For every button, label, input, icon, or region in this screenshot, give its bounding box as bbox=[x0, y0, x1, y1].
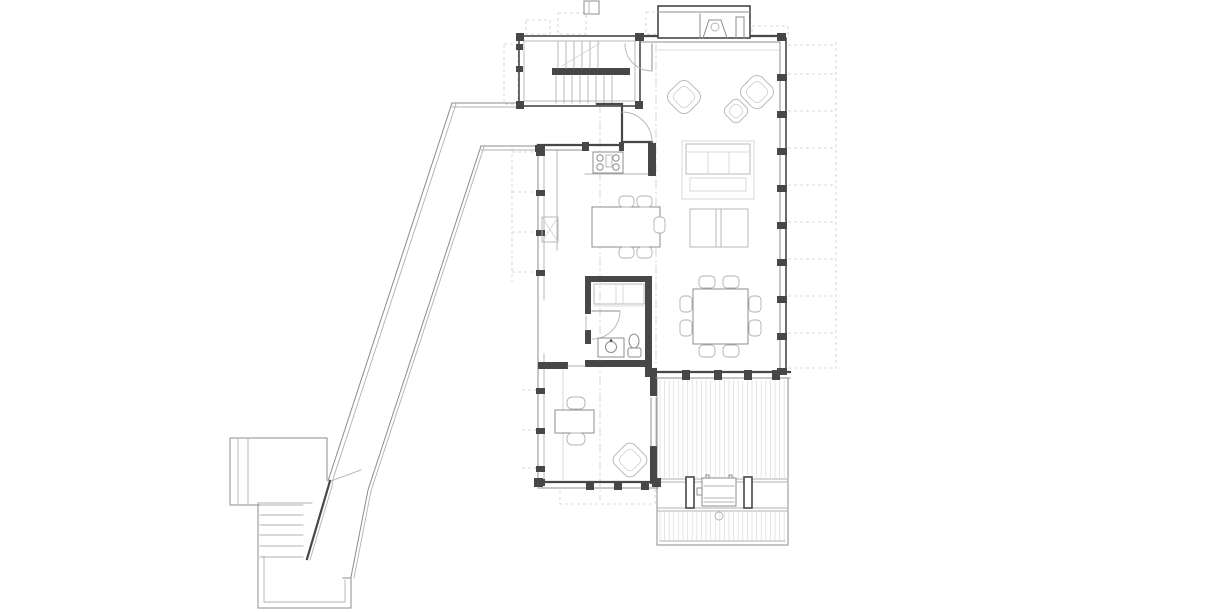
armchair-outer bbox=[664, 77, 704, 117]
stair-treads bbox=[260, 505, 303, 557]
mullion-post bbox=[714, 370, 722, 380]
grill-knob bbox=[697, 488, 702, 495]
bedroom-armchair bbox=[610, 440, 650, 480]
upper-landing bbox=[230, 438, 327, 505]
fireplace bbox=[658, 6, 750, 38]
lounge-armchair bbox=[664, 77, 704, 117]
ramp-outer-rail-inner bbox=[332, 104, 456, 482]
sofa bbox=[682, 141, 754, 199]
roof-overhang-dashes-right bbox=[788, 45, 836, 368]
roof-dash-box bbox=[558, 13, 586, 34]
roof-dash-box bbox=[560, 488, 655, 504]
dining-set bbox=[680, 276, 761, 357]
upper-landing-outline bbox=[230, 438, 327, 505]
mullion-post bbox=[777, 222, 787, 229]
desk bbox=[555, 410, 594, 433]
dining-chair bbox=[749, 296, 761, 312]
bedroom bbox=[534, 362, 661, 490]
desk-chair bbox=[567, 397, 585, 409]
stair-lower-flight-treads bbox=[556, 76, 612, 103]
island-stool bbox=[637, 247, 652, 258]
bedroom-north-wall bbox=[538, 362, 568, 369]
deck-drain bbox=[715, 512, 723, 520]
stair-mid-landing bbox=[552, 68, 630, 75]
ramp-rail-dark-inner bbox=[310, 483, 333, 560]
mullion-post bbox=[536, 466, 545, 472]
mullion-post bbox=[536, 190, 545, 196]
exterior-stairs bbox=[258, 503, 312, 608]
mullion-post bbox=[777, 74, 787, 81]
lower-landing-inner bbox=[264, 556, 345, 602]
stair-upper-flight-treads bbox=[558, 41, 598, 68]
wall-post bbox=[652, 478, 661, 487]
overhang-dashes-left bbox=[512, 152, 538, 468]
stair-hall bbox=[516, 1, 652, 109]
sofa-body bbox=[686, 144, 750, 174]
island-stool bbox=[654, 217, 665, 233]
mullion-post bbox=[536, 388, 545, 394]
kitchen-wall-return bbox=[648, 143, 656, 176]
desk-chair bbox=[567, 433, 585, 445]
mullion-post bbox=[536, 270, 545, 276]
mullion-post bbox=[777, 185, 787, 192]
mullion-post bbox=[777, 333, 787, 340]
wall-post bbox=[516, 33, 524, 41]
dining-chair bbox=[723, 345, 739, 357]
roof-dash-box bbox=[504, 44, 518, 104]
barbecue-grill bbox=[697, 475, 736, 506]
mullion-post bbox=[777, 148, 787, 155]
dining-chair bbox=[699, 345, 715, 357]
ramp-walkway bbox=[307, 103, 540, 578]
deck-post bbox=[744, 477, 752, 508]
entry-door-swing bbox=[622, 112, 652, 142]
deck bbox=[657, 378, 788, 545]
bathroom bbox=[585, 276, 652, 377]
bathroom-west-wall bbox=[585, 302, 591, 314]
coffee-table bbox=[690, 209, 748, 247]
entry-wall bbox=[597, 104, 622, 140]
closet-wall bbox=[585, 276, 652, 282]
roof-dash-box bbox=[526, 20, 550, 34]
bathroom-west-wall bbox=[585, 330, 591, 344]
right-wing bbox=[636, 6, 790, 380]
bathroom-south-wall bbox=[585, 360, 652, 367]
mullion-post bbox=[777, 111, 787, 118]
wall-post bbox=[534, 478, 543, 487]
vanity-faucet bbox=[610, 339, 613, 342]
lower-landing-outline bbox=[258, 578, 351, 608]
left-wing bbox=[534, 142, 665, 490]
entry-vestibule bbox=[597, 104, 652, 142]
dining-chair bbox=[749, 320, 761, 336]
armchair-outer bbox=[610, 440, 650, 480]
mullion-post bbox=[777, 259, 787, 266]
dining-chair bbox=[680, 296, 692, 312]
kitchen-island bbox=[592, 207, 660, 247]
toilet-bowl bbox=[629, 334, 639, 348]
mullion-post bbox=[744, 370, 752, 380]
dining-chair bbox=[723, 276, 739, 288]
grill-handle bbox=[706, 475, 709, 478]
dining-table bbox=[693, 289, 748, 344]
mullion-post bbox=[536, 428, 545, 434]
wall-post bbox=[516, 66, 523, 72]
wall-post bbox=[635, 101, 643, 109]
upper-landing-steps bbox=[238, 438, 248, 505]
deck-post bbox=[686, 477, 694, 508]
ramp-inner-rail-inner bbox=[354, 147, 484, 578]
closet-shelf-lines bbox=[594, 284, 644, 306]
ramp-rail-dark-segment bbox=[307, 481, 330, 559]
dining-chair bbox=[699, 276, 715, 288]
mullion-post bbox=[536, 230, 545, 236]
mullion-post bbox=[772, 370, 780, 380]
toilet-tank bbox=[628, 348, 641, 357]
mullion-post bbox=[586, 481, 594, 490]
stair-break-line bbox=[562, 43, 600, 66]
wall-post bbox=[636, 33, 644, 41]
floor-plan bbox=[0, 0, 1226, 613]
ramp-inner-rail bbox=[351, 146, 481, 577]
stove bbox=[593, 152, 623, 173]
mullion-post bbox=[641, 481, 649, 490]
mullion-post bbox=[614, 481, 622, 490]
island-stool bbox=[637, 196, 652, 207]
stair-door-swing bbox=[625, 44, 652, 71]
deck-board-hatching bbox=[660, 380, 784, 541]
wall-post bbox=[516, 101, 524, 109]
coffee-table-pair bbox=[690, 209, 748, 247]
door-jamb bbox=[619, 142, 624, 151]
kitchen bbox=[542, 151, 665, 258]
grill-handle bbox=[729, 475, 732, 478]
mullion-post bbox=[777, 296, 787, 303]
mullion-post bbox=[682, 370, 690, 380]
closet bbox=[585, 276, 652, 308]
skylight bbox=[584, 1, 599, 14]
closet-shelf bbox=[594, 284, 644, 304]
wall-post bbox=[777, 33, 786, 41]
lower-landing bbox=[258, 556, 351, 608]
door-jamb bbox=[582, 142, 589, 151]
dining-chair bbox=[680, 320, 692, 336]
island-stool bbox=[619, 247, 634, 258]
roof-dash-box bbox=[646, 12, 658, 34]
wall-post bbox=[516, 44, 523, 50]
deck-edge bbox=[657, 378, 788, 545]
sofa-bench bbox=[690, 178, 746, 191]
bathroom-door-swing bbox=[592, 311, 620, 339]
island-stool bbox=[619, 196, 634, 207]
